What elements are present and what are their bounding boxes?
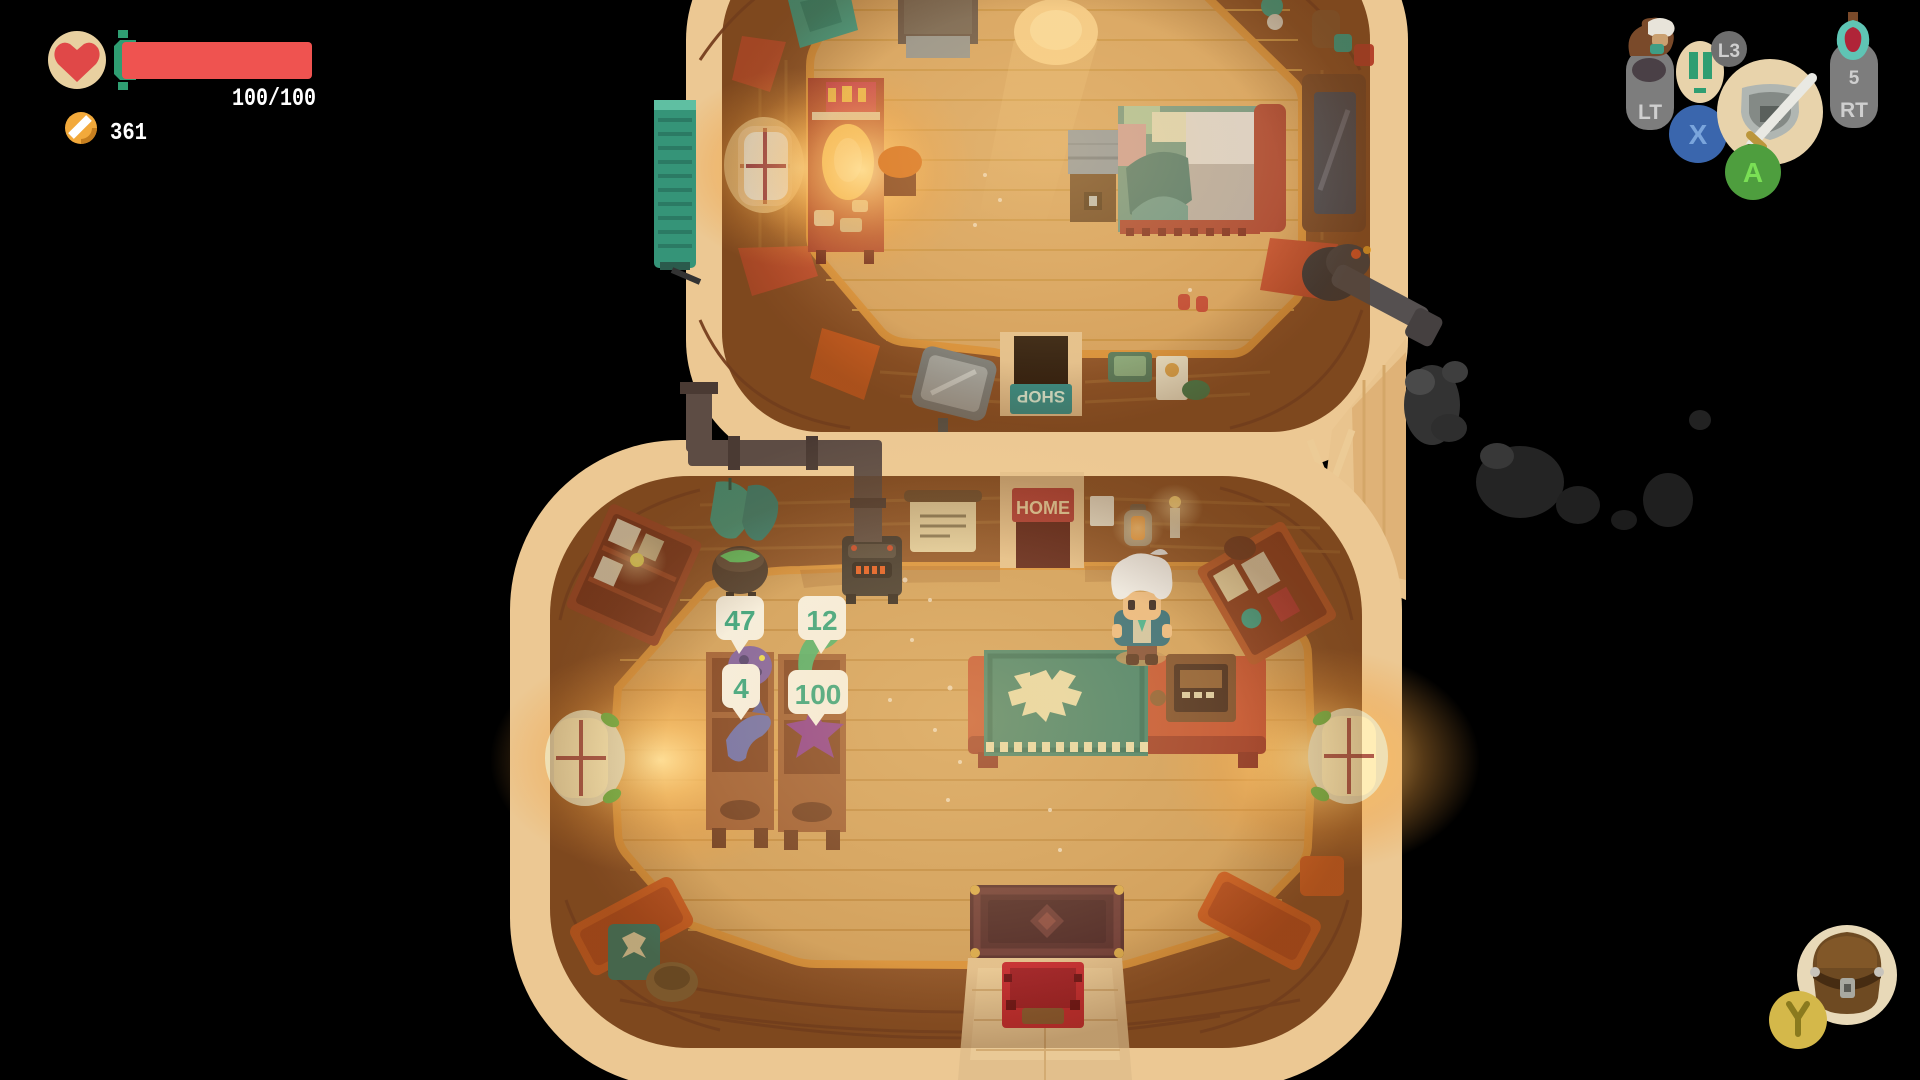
svg-text:RT: RT	[1840, 99, 1868, 122]
svg-text:100/100: 100/100	[232, 84, 316, 113]
svg-text:A: A	[1743, 157, 1763, 188]
svg-text:L3: L3	[1718, 41, 1740, 62]
svg-text:361: 361	[110, 120, 147, 147]
svg-text:LT: LT	[1638, 101, 1662, 124]
svg-text:5: 5	[1849, 68, 1860, 89]
svg-text:X: X	[1689, 119, 1708, 150]
